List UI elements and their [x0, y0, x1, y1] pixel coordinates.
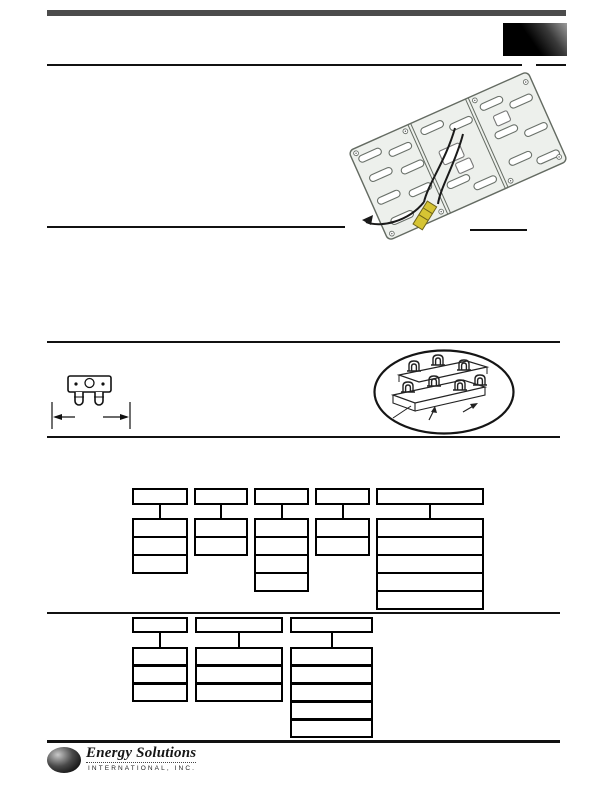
upper-code-header-box-2: [194, 488, 248, 505]
datasheet-page: Energy Solutions INTERNATIONAL, INC.: [0, 0, 612, 792]
upper-code-connector-line-5: [429, 505, 431, 518]
section-rule-3: [47, 436, 560, 438]
upper-code-option-row: [378, 572, 482, 590]
lower-code-option-row: [197, 649, 281, 664]
lower-code-option-row: [197, 682, 281, 700]
terminal-detail-illustration: [371, 348, 517, 436]
company-logo: Energy Solutions INTERNATIONAL, INC.: [47, 745, 196, 773]
upper-code-option-row: [196, 520, 246, 536]
lower-code-connector-line-2: [238, 633, 240, 647]
lower-code-connector-line-1: [159, 633, 161, 647]
upper-code-option-stack-4: [315, 518, 370, 556]
upper-code-option-row: [317, 536, 368, 554]
upper-code-connector-line-3: [281, 505, 283, 518]
upper-code-option-stack-5: [376, 518, 484, 610]
upper-code-option-row: [256, 572, 307, 590]
lower-code-option-row: [292, 649, 371, 664]
company-subtitle: INTERNATIONAL, INC.: [86, 765, 196, 772]
upper-code-option-stack-3: [254, 518, 309, 592]
upper-code-option-row: [134, 520, 186, 536]
lower-code-option-row: [292, 718, 371, 736]
company-name: Energy Solutions: [86, 745, 196, 763]
brand-logo-box: [503, 23, 567, 56]
lower-code-option-row: [292, 664, 371, 682]
upper-code-option-row: [317, 520, 368, 536]
lower-code-option-row: [292, 700, 371, 718]
upper-code-option-row: [378, 520, 482, 536]
lower-code-option-row: [134, 664, 186, 682]
lower-code-header-box-3: [290, 617, 373, 633]
upper-code-header-box-5: [376, 488, 484, 505]
upper-code-option-stack-1: [132, 518, 188, 574]
lower-code-option-row: [134, 682, 186, 700]
section-rule-2: [47, 341, 560, 343]
upper-code-connector-line-4: [342, 505, 344, 518]
upper-code-option-row: [196, 536, 246, 554]
panel-assembly-illustration: [346, 62, 570, 242]
lower-code-option-row: [134, 649, 186, 664]
upper-code-option-row: [378, 536, 482, 554]
section-rule-1-right: [470, 229, 527, 231]
upper-code-connector-line-1: [159, 505, 161, 518]
upper-code-option-row: [256, 536, 307, 554]
lower-code-option-stack-2: [195, 647, 283, 702]
upper-code-option-row: [378, 554, 482, 572]
bottom-rule: [47, 740, 560, 743]
upper-code-option-row: [256, 554, 307, 572]
upper-code-header-box-3: [254, 488, 309, 505]
upper-code-option-row: [134, 536, 186, 554]
lower-code-header-box-1: [132, 617, 188, 633]
section-rule-1-left: [47, 226, 345, 228]
upper-code-option-row: [256, 520, 307, 536]
globe-icon: [47, 747, 81, 773]
upper-code-option-row: [378, 590, 482, 608]
upper-code-header-box-1: [132, 488, 188, 505]
upper-code-option-row: [134, 554, 186, 572]
section-rule-4: [47, 612, 560, 614]
lower-code-option-row: [292, 682, 371, 700]
upper-code-connector-line-2: [220, 505, 222, 518]
lower-code-option-stack-1: [132, 647, 188, 702]
lower-code-option-row: [197, 664, 281, 682]
lower-code-option-stack-3: [290, 647, 373, 738]
fuse-dimension-drawing: [45, 368, 137, 434]
upper-code-header-box-4: [315, 488, 370, 505]
lower-code-connector-line-3: [331, 633, 333, 647]
lower-code-header-box-2: [195, 617, 283, 633]
top-rule-bar: [47, 10, 566, 16]
upper-code-option-stack-2: [194, 518, 248, 556]
